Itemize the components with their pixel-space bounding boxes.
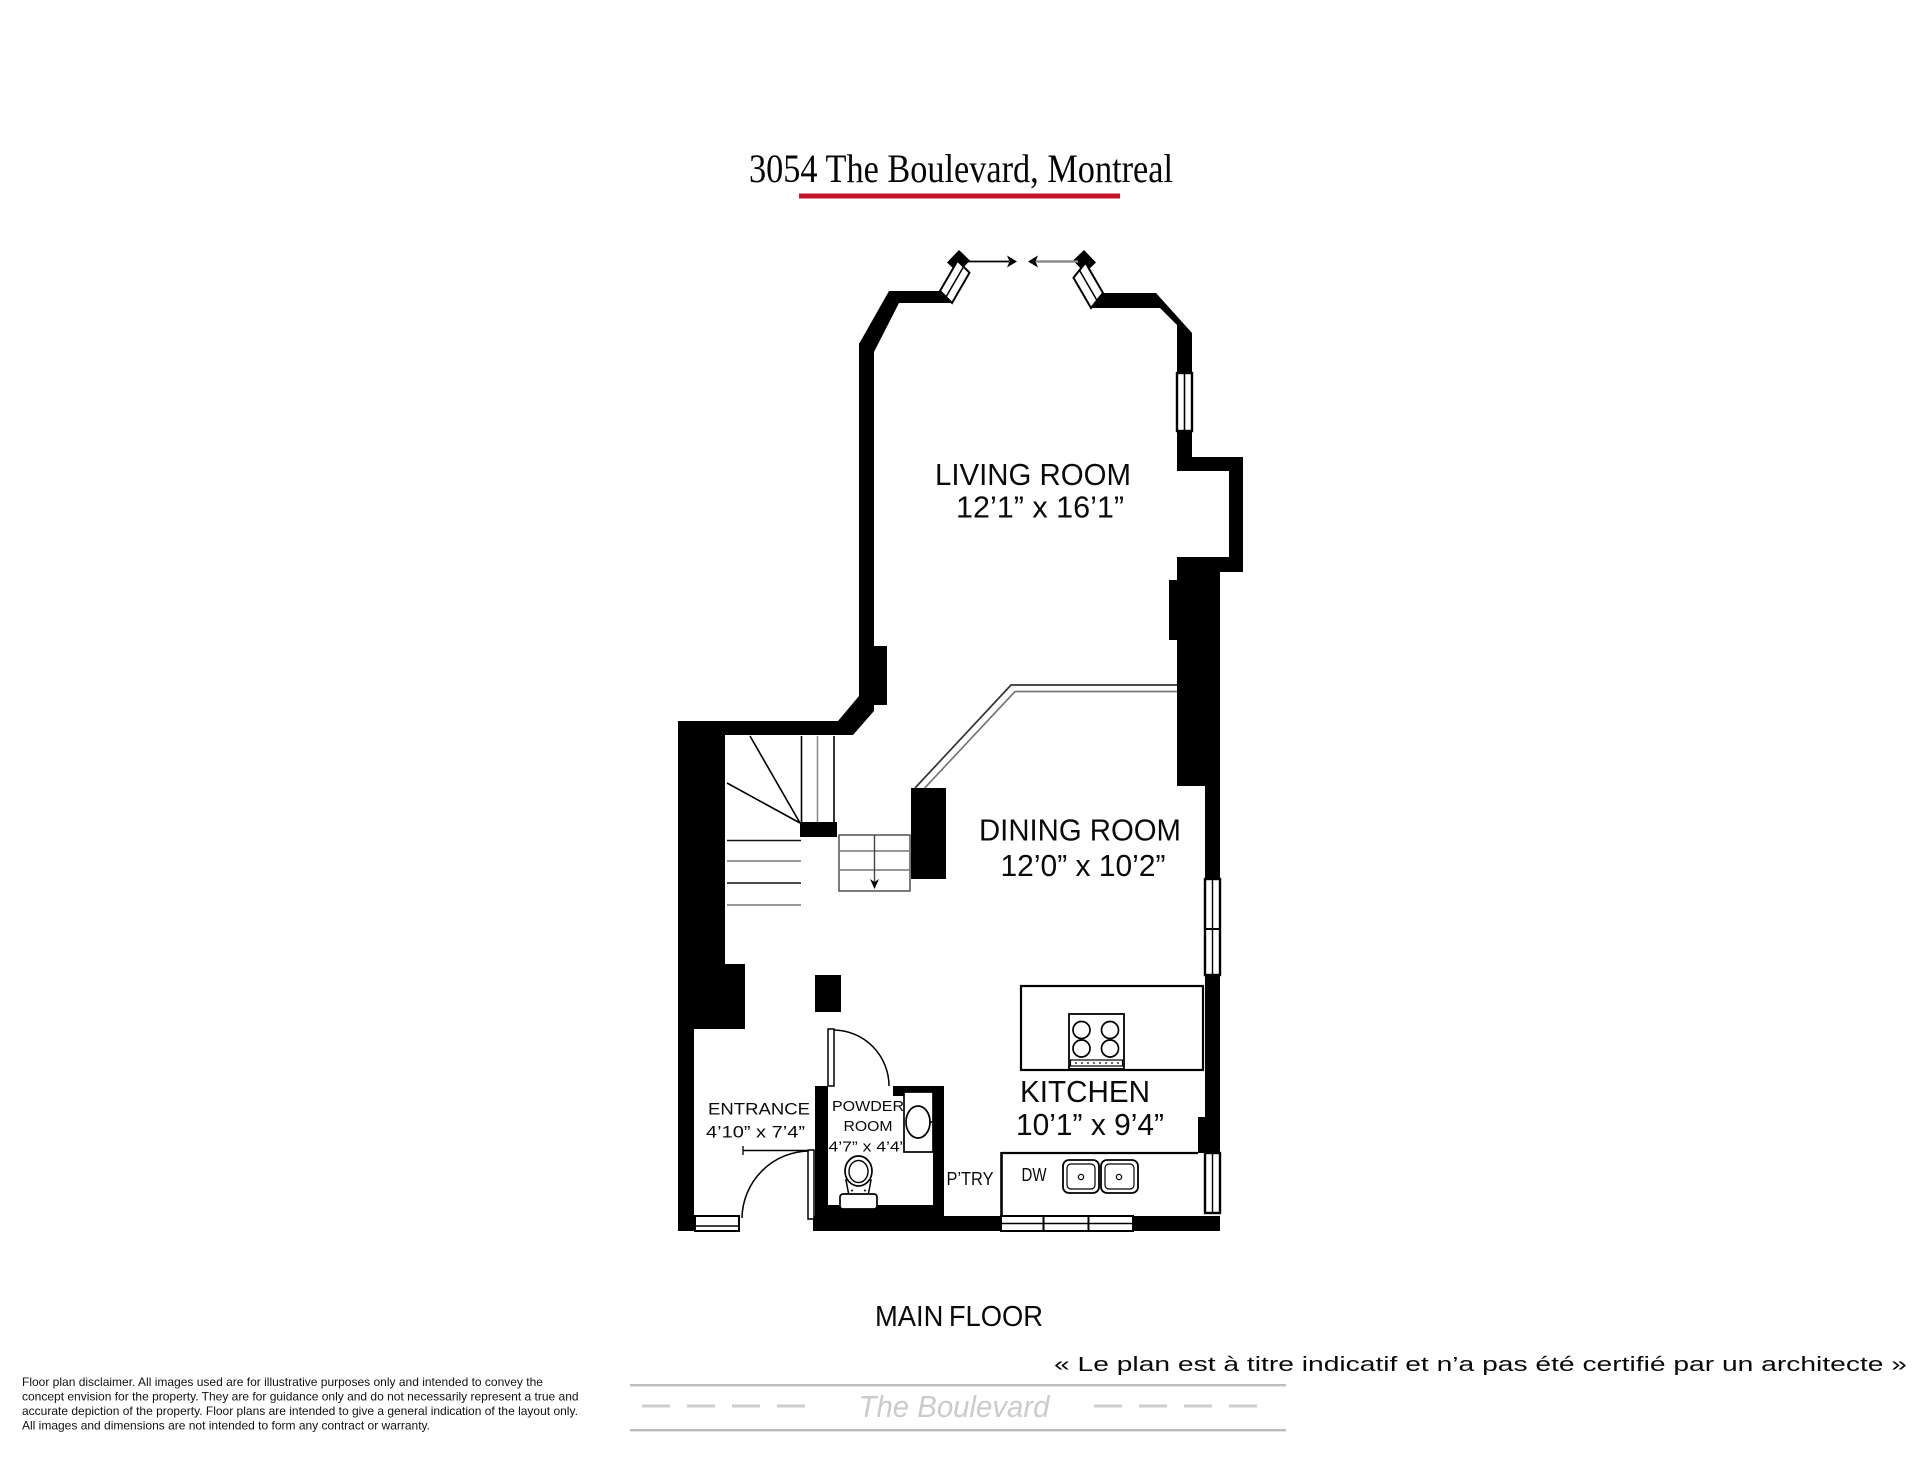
svg-text:Floor plan disclaimer. All ima: Floor plan disclaimer. All images used a… — [22, 1375, 543, 1389]
svg-text:concept envision for the prope: concept envision for the property. They … — [22, 1390, 579, 1404]
svg-text:DW: DW — [1022, 1165, 1047, 1185]
svg-text:12’0” x 10’2”: 12’0” x 10’2” — [1001, 848, 1166, 883]
svg-text:3054 The Boulevard, Montreal: 3054 The Boulevard, Montreal — [749, 146, 1173, 191]
svg-text:MAIN FLOOR: MAIN FLOOR — [875, 1301, 1043, 1333]
svg-text:ENTRANCE: ENTRANCE — [708, 1101, 810, 1119]
svg-text:The Boulevard: The Boulevard — [859, 1389, 1052, 1424]
svg-text:POWDER: POWDER — [832, 1099, 904, 1115]
svg-text:ROOM: ROOM — [844, 1119, 893, 1135]
svg-text:4’7” x 4’4”: 4’7” x 4’4” — [829, 1140, 906, 1156]
svg-text:LIVING ROOM: LIVING ROOM — [935, 457, 1131, 492]
svg-text:12’1” x 16’1”: 12’1” x 16’1” — [956, 490, 1124, 525]
svg-text:« Le plan est à titre indicati: « Le plan est à titre indicatif et n’a p… — [1054, 1354, 1907, 1376]
svg-text:P’TRY: P’TRY — [947, 1169, 994, 1189]
svg-text:KITCHEN: KITCHEN — [1020, 1074, 1150, 1109]
svg-text:10’1” x 9’4”: 10’1” x 9’4” — [1016, 1107, 1164, 1142]
svg-text:DINING ROOM: DINING ROOM — [979, 813, 1181, 848]
svg-text:accurate depiction of the prop: accurate depiction of the property. Floo… — [22, 1404, 578, 1418]
svg-text:All images and dimensions are: All images and dimensions are not intend… — [22, 1419, 430, 1433]
svg-text:4’10” x 7’4”: 4’10” x 7’4” — [706, 1124, 805, 1142]
